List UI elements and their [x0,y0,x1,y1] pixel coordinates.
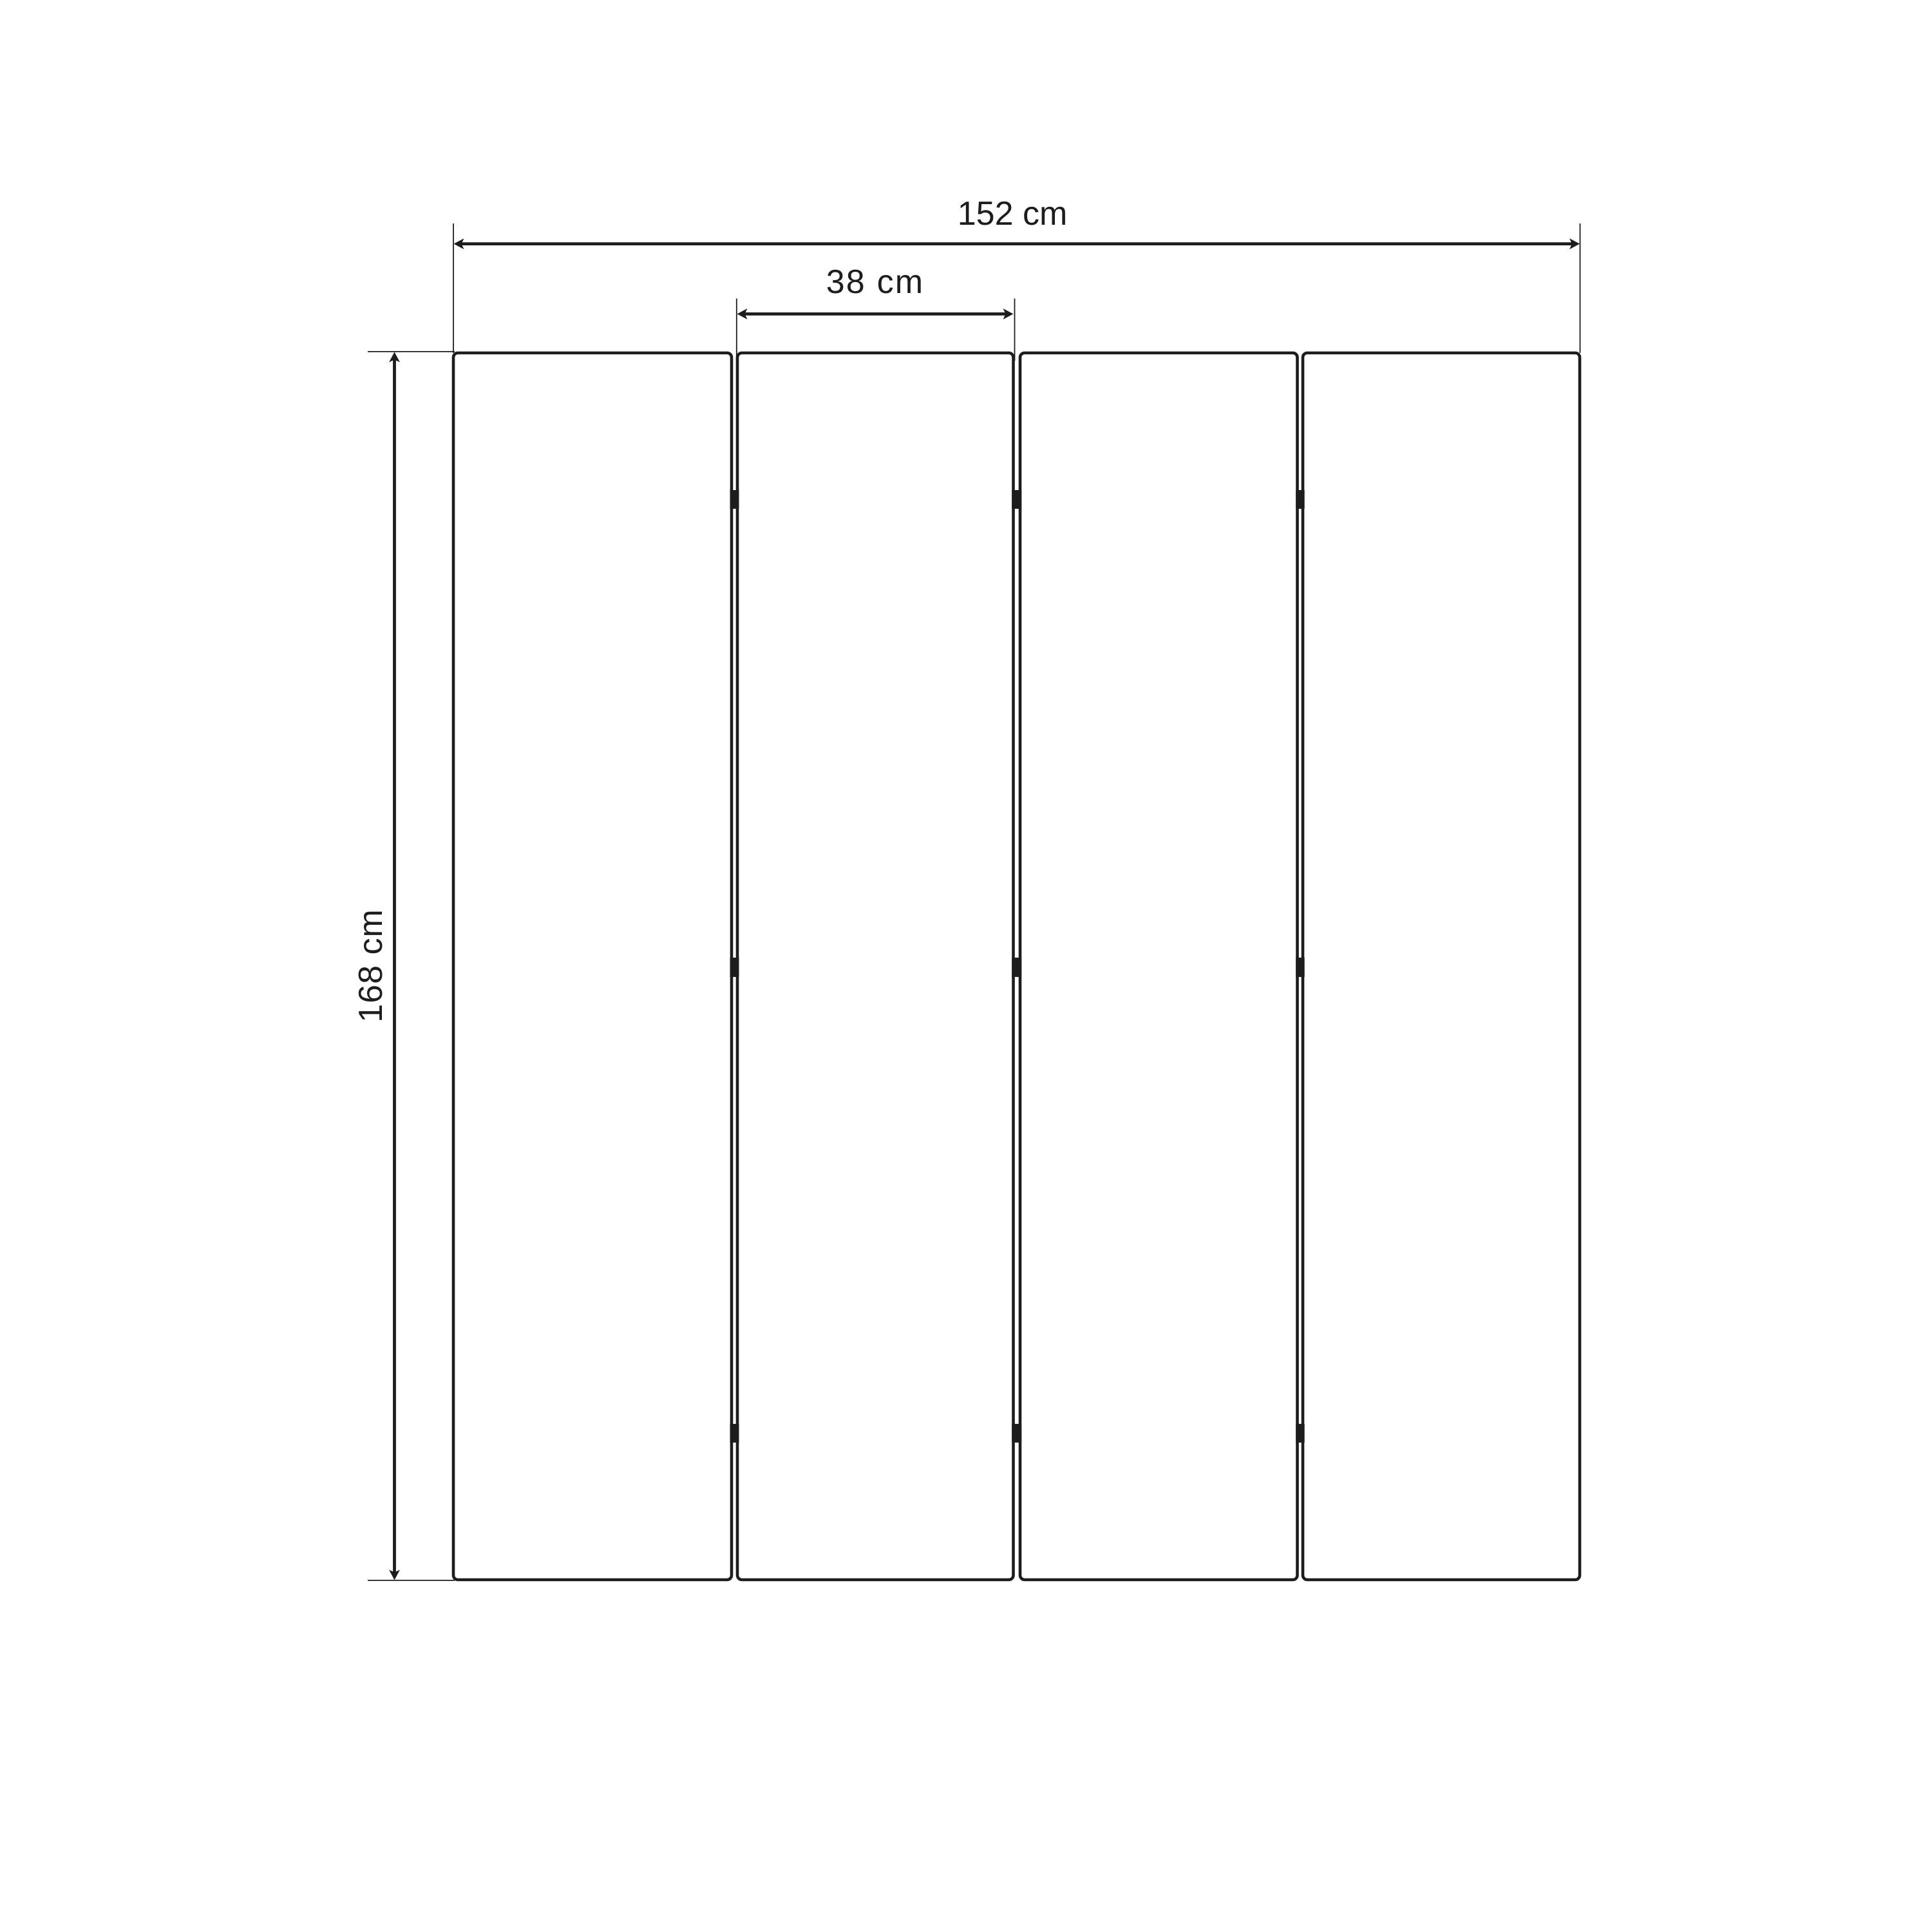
svg-text:38 cm: 38 cm [826,263,925,301]
svg-text:168 cm: 168 cm [352,909,390,1023]
svg-text:152 cm: 152 cm [958,195,1068,232]
